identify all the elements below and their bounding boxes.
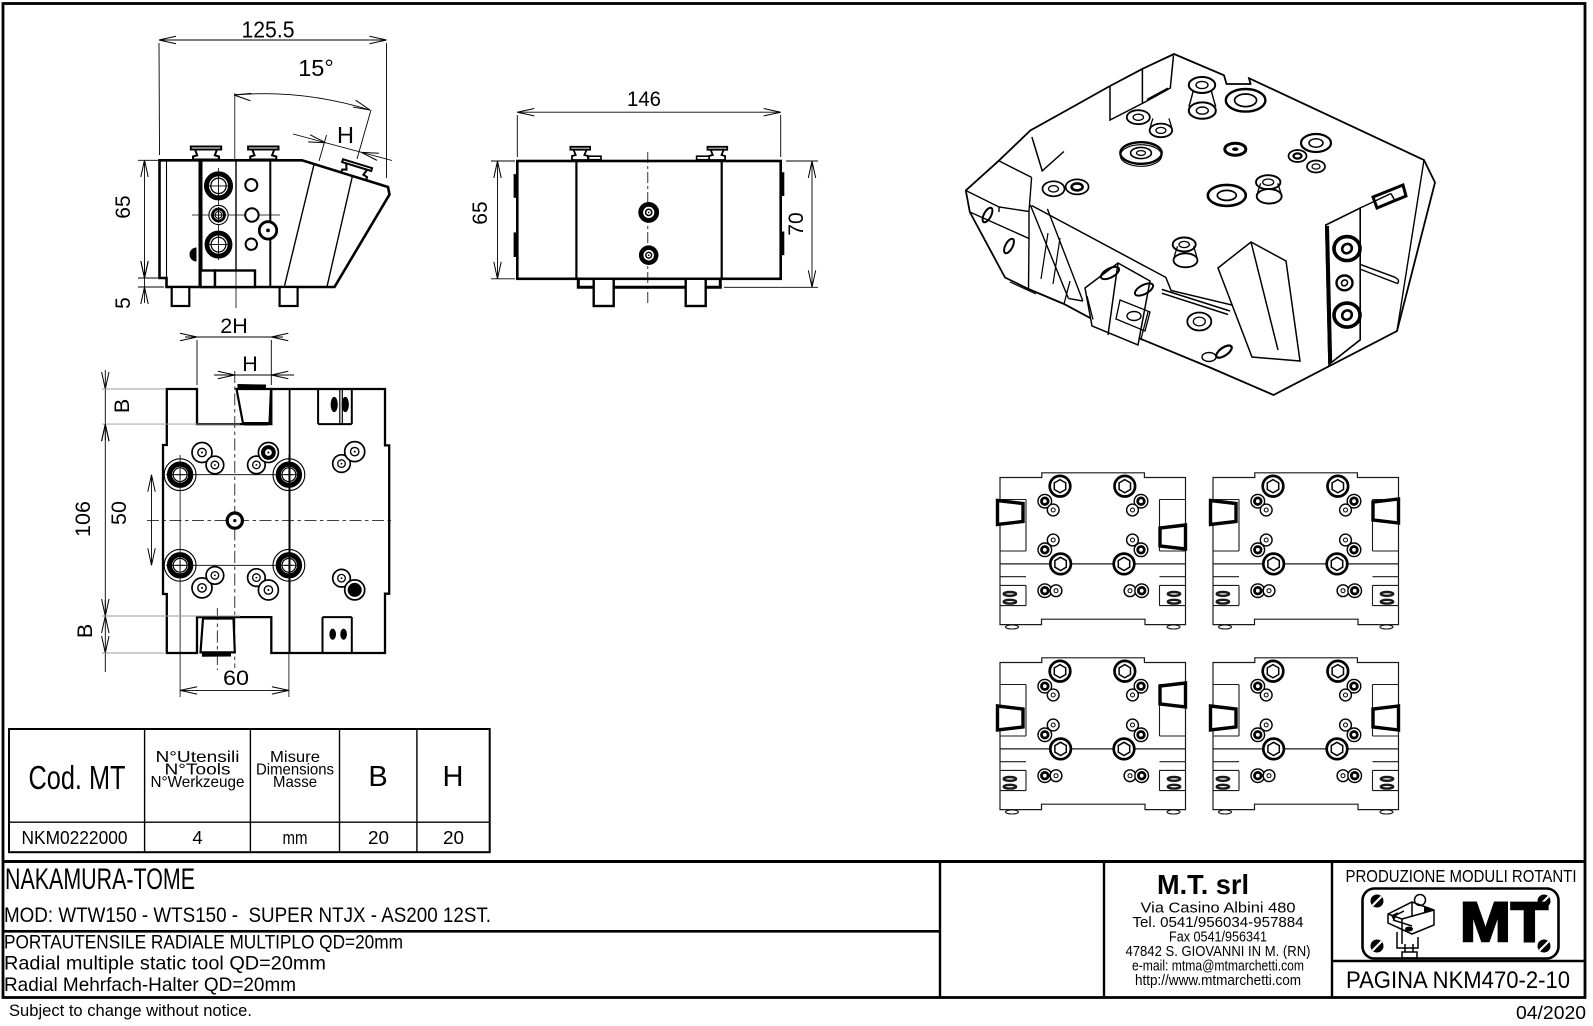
svg-text:5: 5 xyxy=(112,297,135,309)
svg-text:PORTAUTENSILE RADIALE MULTIPLO: PORTAUTENSILE RADIALE MULTIPLO QD=20mm xyxy=(4,932,403,954)
svg-text:106: 106 xyxy=(71,501,95,537)
svg-text:Radial Mehrfach-Halter QD=20mm: Radial Mehrfach-Halter QD=20mm xyxy=(4,974,296,996)
svg-text:Subject to change without noti: Subject to change without notice. xyxy=(9,1002,252,1020)
svg-text:PRODUZIONE MODULI ROTANTI: PRODUZIONE MODULI ROTANTI xyxy=(1346,866,1577,886)
svg-text:NAKAMURA-TOME: NAKAMURA-TOME xyxy=(5,863,195,896)
svg-text:MOD: WTW150 - WTS150 - SUPER: MOD: WTW150 - WTS150 - SUPER NTJX - AS20… xyxy=(4,904,491,927)
svg-text:Radial multiple static tool QD: Radial multiple static tool QD=20mm xyxy=(4,953,326,975)
svg-text:MT: MT xyxy=(1460,890,1548,953)
svg-text:04/2020: 04/2020 xyxy=(1516,1002,1586,1023)
svg-text:B: B xyxy=(368,761,387,793)
svg-text:PAGINA NKM470-2-10: PAGINA NKM470-2-10 xyxy=(1346,967,1570,994)
svg-text:20: 20 xyxy=(368,827,389,848)
svg-text:50: 50 xyxy=(107,501,131,525)
svg-text:60: 60 xyxy=(223,666,249,690)
svg-text:H: H xyxy=(337,122,354,148)
svg-text:B: B xyxy=(73,624,97,638)
svg-text:125.5: 125.5 xyxy=(242,17,295,43)
svg-text:65: 65 xyxy=(112,195,135,218)
svg-text:4: 4 xyxy=(192,827,202,848)
svg-text:NKM0222000: NKM0222000 xyxy=(22,827,128,848)
svg-text:70: 70 xyxy=(785,212,808,235)
svg-text:146: 146 xyxy=(627,87,661,111)
svg-text:N°Werkzeuge: N°Werkzeuge xyxy=(151,774,245,791)
svg-text:B: B xyxy=(110,399,134,413)
svg-text:65: 65 xyxy=(469,201,492,224)
svg-text:http://www.mtmarchetti.com: http://www.mtmarchetti.com xyxy=(1135,972,1301,989)
svg-text:mm: mm xyxy=(283,827,308,848)
svg-text:15°: 15° xyxy=(298,55,334,81)
svg-text:H: H xyxy=(443,761,464,793)
svg-text:H: H xyxy=(242,352,258,376)
svg-text:20: 20 xyxy=(443,827,464,848)
svg-text:M.T. srl: M.T. srl xyxy=(1157,869,1249,900)
svg-text:Cod. MT: Cod. MT xyxy=(29,759,126,796)
svg-text:Masse: Masse xyxy=(273,774,317,791)
svg-text:2H: 2H xyxy=(220,314,247,338)
